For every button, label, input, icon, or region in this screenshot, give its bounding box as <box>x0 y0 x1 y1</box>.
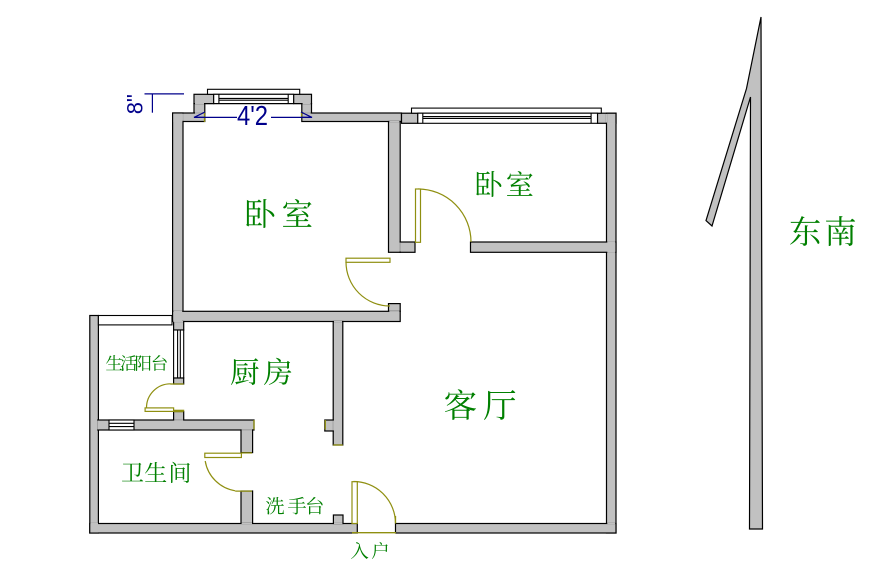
svg-text:4'2: 4'2 <box>237 100 268 131</box>
svg-text:8": 8" <box>123 94 148 114</box>
